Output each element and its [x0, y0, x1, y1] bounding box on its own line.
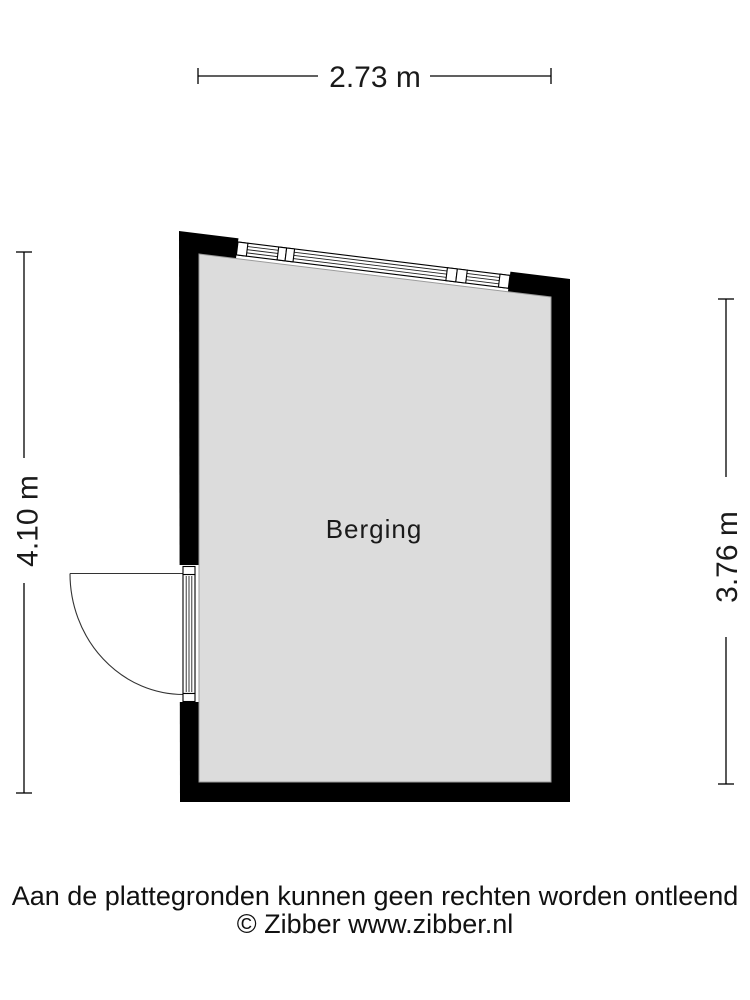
copyright-text: © Zibber www.zibber.nl — [237, 909, 514, 939]
window-end-cap — [498, 274, 510, 288]
floorplan-canvas: 2.73 m 4.10 m 3.76 m — [0, 0, 750, 1000]
floorplan-page: 2.73 m 4.10 m 3.76 m — [0, 0, 750, 1000]
top-dimension: 2.73 m — [198, 61, 551, 94]
window-mullion — [456, 269, 468, 283]
window-mullion — [285, 248, 295, 262]
window-end-cap — [236, 242, 248, 256]
room-label: Berging — [326, 514, 423, 544]
door-frame-cap — [183, 694, 195, 702]
left-dimension-label: 4.10 m — [12, 475, 45, 567]
footer: Aan de plattegronden kunnen geen rechten… — [12, 881, 739, 939]
right-dimension: 3.76 m — [711, 299, 744, 784]
disclaimer-text: Aan de plattegronden kunnen geen rechten… — [12, 881, 739, 911]
left-dimension: 4.10 m — [12, 252, 45, 793]
door-frame-cap — [183, 567, 195, 575]
door-swing-arc — [70, 574, 184, 695]
top-dimension-label: 2.73 m — [329, 61, 421, 94]
right-dimension-label: 3.76 m — [711, 511, 744, 603]
